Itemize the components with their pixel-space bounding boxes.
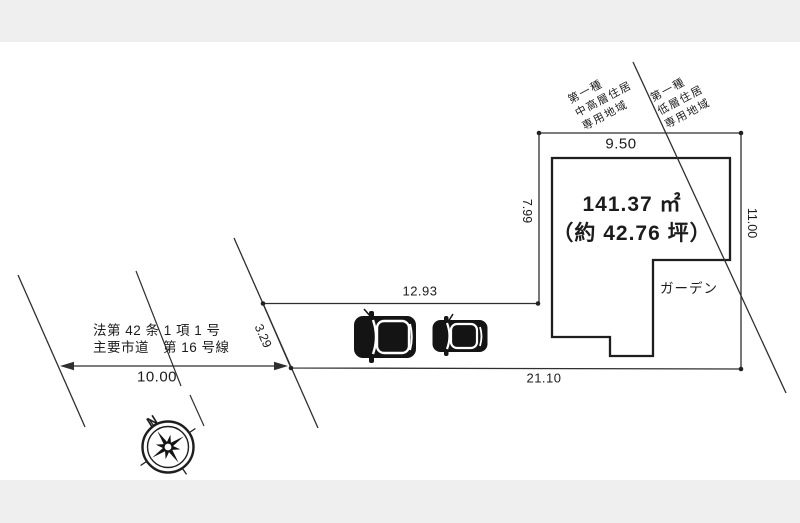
corner-dot bbox=[537, 131, 542, 136]
car-mirror bbox=[369, 311, 374, 319]
road-designation: 法第 42 条 1 項 1 号 主要市道 第 16 号線 bbox=[93, 322, 230, 356]
car-mirror bbox=[369, 355, 374, 363]
building-outline bbox=[552, 158, 730, 356]
car-mirror bbox=[444, 316, 449, 323]
road-name-line: 主要市道 第 16 号線 bbox=[93, 339, 230, 356]
corner-dot bbox=[536, 301, 541, 306]
area-square-meters: 141.37 ㎡ bbox=[552, 190, 711, 219]
corner-dot bbox=[289, 366, 294, 371]
dim-label-left: 7.99 bbox=[520, 199, 534, 223]
corner-dot bbox=[739, 131, 744, 136]
parcel-side-line bbox=[234, 238, 318, 428]
road-edge-line bbox=[18, 275, 85, 427]
plot-plan-drawing: 9.50 7.99 11.00 12.93 3.29 21.10 10.00 1… bbox=[0, 0, 800, 523]
area-tsubo: （約 42.76 坪） bbox=[552, 219, 711, 248]
compass-icon bbox=[141, 420, 196, 475]
corner-dots bbox=[261, 131, 744, 372]
compass-hub bbox=[165, 444, 172, 451]
car-mirror bbox=[444, 349, 449, 356]
arrowhead-right bbox=[274, 362, 288, 370]
corner-dot bbox=[739, 367, 744, 372]
dim-label-road-width: 10.00 bbox=[137, 369, 177, 386]
corner-dot bbox=[261, 301, 266, 306]
road-law-line: 法第 42 条 1 項 1 号 bbox=[93, 322, 230, 339]
dim-label-top: 9.50 bbox=[605, 136, 636, 153]
dim-label-setback: 12.93 bbox=[402, 284, 437, 299]
car-icon bbox=[433, 314, 488, 356]
arrowhead-left bbox=[60, 362, 74, 370]
garden-label: ガーデン bbox=[660, 277, 718, 297]
area-text: 141.37 ㎡ （約 42.76 坪） bbox=[552, 190, 711, 248]
parcel-boundary bbox=[263, 133, 741, 369]
dim-label-bottom: 21.10 bbox=[526, 371, 561, 386]
dim-label-right: 11.00 bbox=[745, 208, 759, 238]
car-icon bbox=[354, 309, 416, 363]
road-center-dash bbox=[190, 395, 204, 426]
